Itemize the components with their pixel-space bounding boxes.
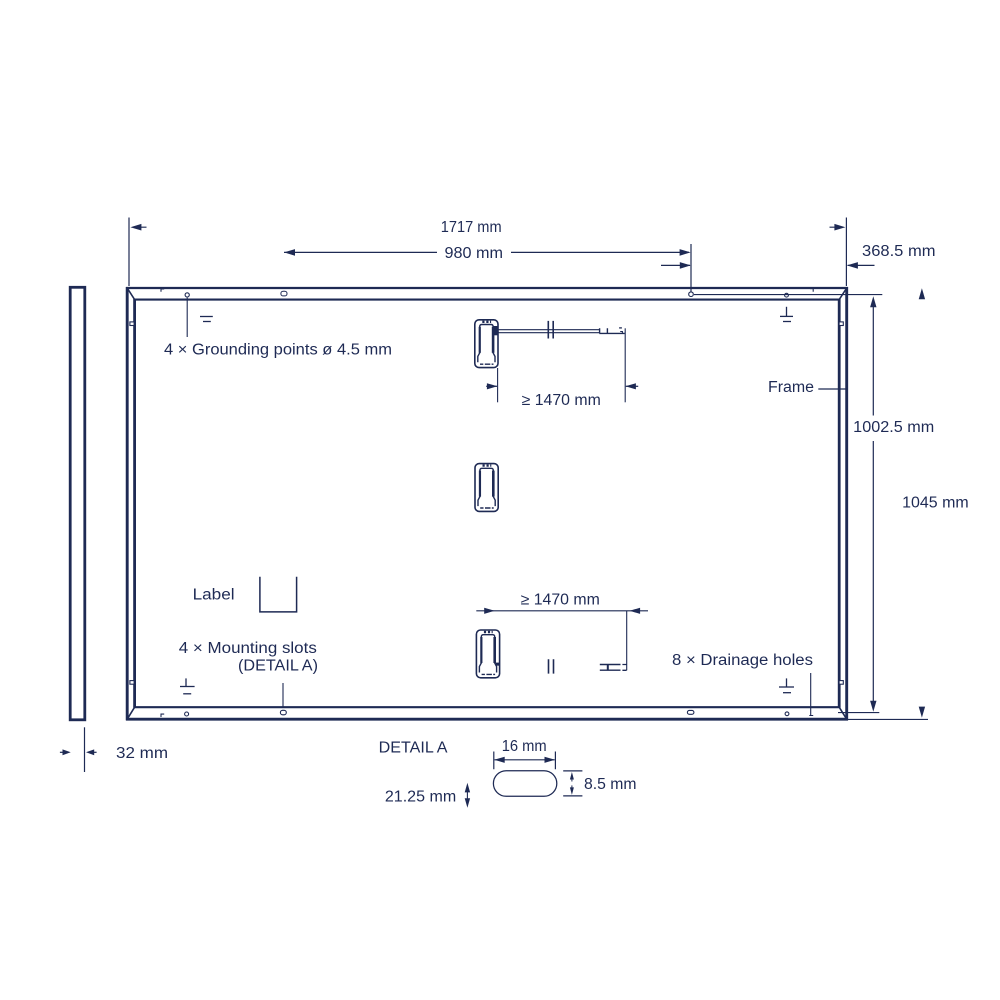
svg-text:8 × Drainage holes: 8 × Drainage holes (672, 652, 813, 669)
svg-text:DETAIL A: DETAIL A (379, 740, 449, 757)
svg-text:1002.5 mm: 1002.5 mm (853, 419, 934, 436)
svg-text:980 mm: 980 mm (445, 245, 504, 262)
svg-text:Label: Label (193, 586, 235, 603)
svg-text:4 × Mounting slots: 4 × Mounting slots (179, 640, 317, 657)
svg-text:≥ 1470 mm: ≥ 1470 mm (522, 392, 601, 409)
svg-text:Frame: Frame (768, 379, 814, 396)
svg-text:1717 mm: 1717 mm (441, 219, 502, 236)
svg-text:21.25 mm: 21.25 mm (385, 788, 456, 805)
svg-text:(DETAIL A): (DETAIL A) (238, 658, 318, 675)
svg-text:8.5 mm: 8.5 mm (584, 776, 637, 793)
svg-text:≥ 1470 mm: ≥ 1470 mm (521, 591, 600, 608)
svg-text:32 mm: 32 mm (116, 745, 168, 762)
svg-text:368.5 mm: 368.5 mm (862, 243, 936, 260)
svg-text:16 mm: 16 mm (502, 738, 547, 755)
svg-text:1045 mm: 1045 mm (902, 495, 969, 512)
svg-text:4 × Grounding points ø 4.5 mm: 4 × Grounding points ø 4.5 mm (164, 342, 392, 359)
